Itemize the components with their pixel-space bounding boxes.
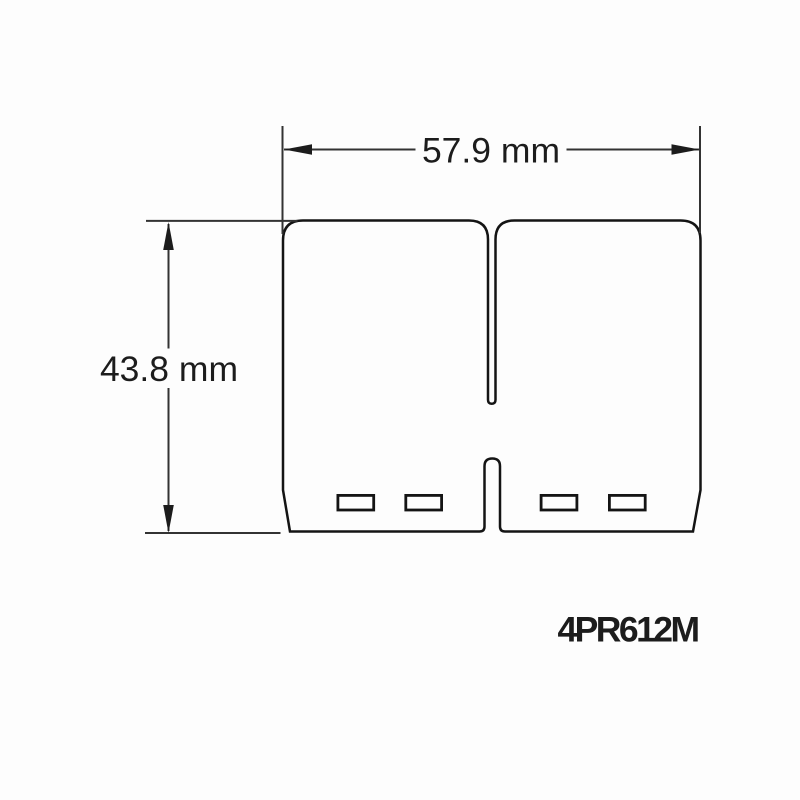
svg-text:43.8 mm: 43.8 mm <box>100 349 238 389</box>
svg-text:57.9 mm: 57.9 mm <box>422 131 560 171</box>
svg-text:4PR612M: 4PR612M <box>557 610 698 650</box>
